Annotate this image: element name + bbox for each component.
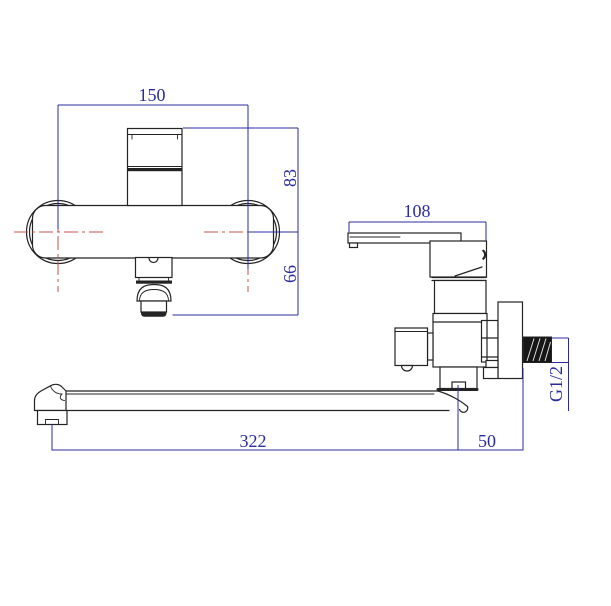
aerator <box>38 411 68 425</box>
dim-label-322: 322 <box>240 431 267 451</box>
technical-drawing-canvas: 150 83 66 <box>0 0 611 606</box>
dim-label-83: 83 <box>280 169 300 187</box>
spout-tip <box>35 384 67 410</box>
mixer-body-side <box>430 241 487 367</box>
dim-label-66: 66 <box>280 265 300 283</box>
dim-label-150: 150 <box>139 85 166 105</box>
handle-cartridge-front <box>128 129 183 206</box>
dim-label-g12: G1/2 <box>546 366 566 402</box>
faucet-dimensional-drawing: 150 83 66 <box>0 0 611 606</box>
wall-nut <box>482 321 499 363</box>
spout-joint-front <box>136 258 173 317</box>
diverter-outlet <box>395 328 433 371</box>
spout <box>35 384 468 424</box>
thread-nipple <box>524 337 552 363</box>
front-view: 150 83 66 <box>14 85 300 317</box>
dim-label-50: 50 <box>478 431 496 451</box>
dim-label-108: 108 <box>404 201 431 221</box>
